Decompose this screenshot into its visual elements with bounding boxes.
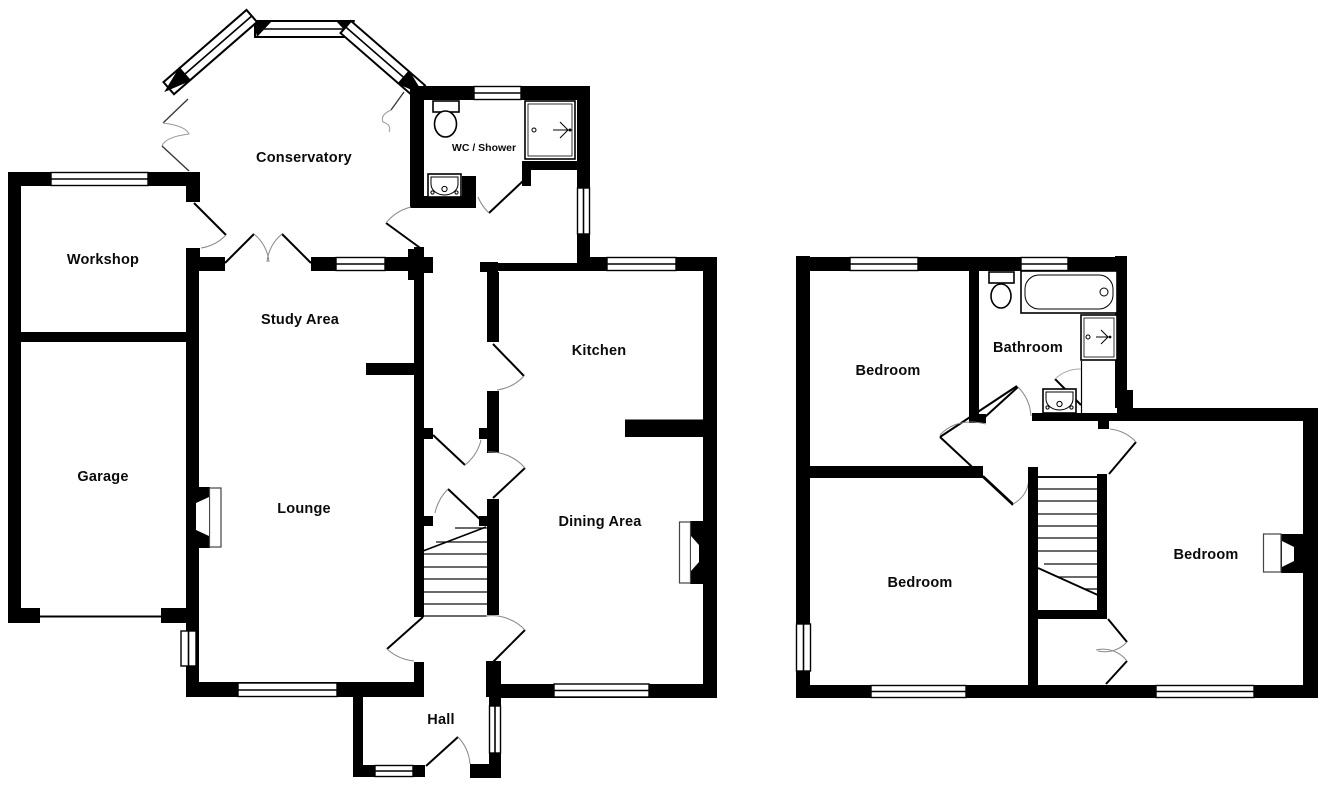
svg-text:Bathroom: Bathroom [993, 340, 1063, 356]
svg-text:WC / Shower: WC / Shower [452, 142, 516, 154]
svg-text:Bedroom: Bedroom [855, 363, 920, 379]
svg-text:Hall: Hall [427, 712, 454, 728]
svg-text:Lounge: Lounge [277, 501, 331, 517]
svg-text:Workshop: Workshop [67, 252, 139, 268]
svg-text:Conservatory: Conservatory [256, 150, 352, 166]
svg-text:Bedroom: Bedroom [1173, 547, 1238, 563]
svg-text:Bedroom: Bedroom [887, 575, 952, 591]
svg-text:Kitchen: Kitchen [572, 343, 627, 359]
svg-text:Dining Area: Dining Area [558, 514, 642, 530]
svg-text:Study Area: Study Area [261, 312, 340, 328]
svg-text:Garage: Garage [77, 469, 128, 485]
